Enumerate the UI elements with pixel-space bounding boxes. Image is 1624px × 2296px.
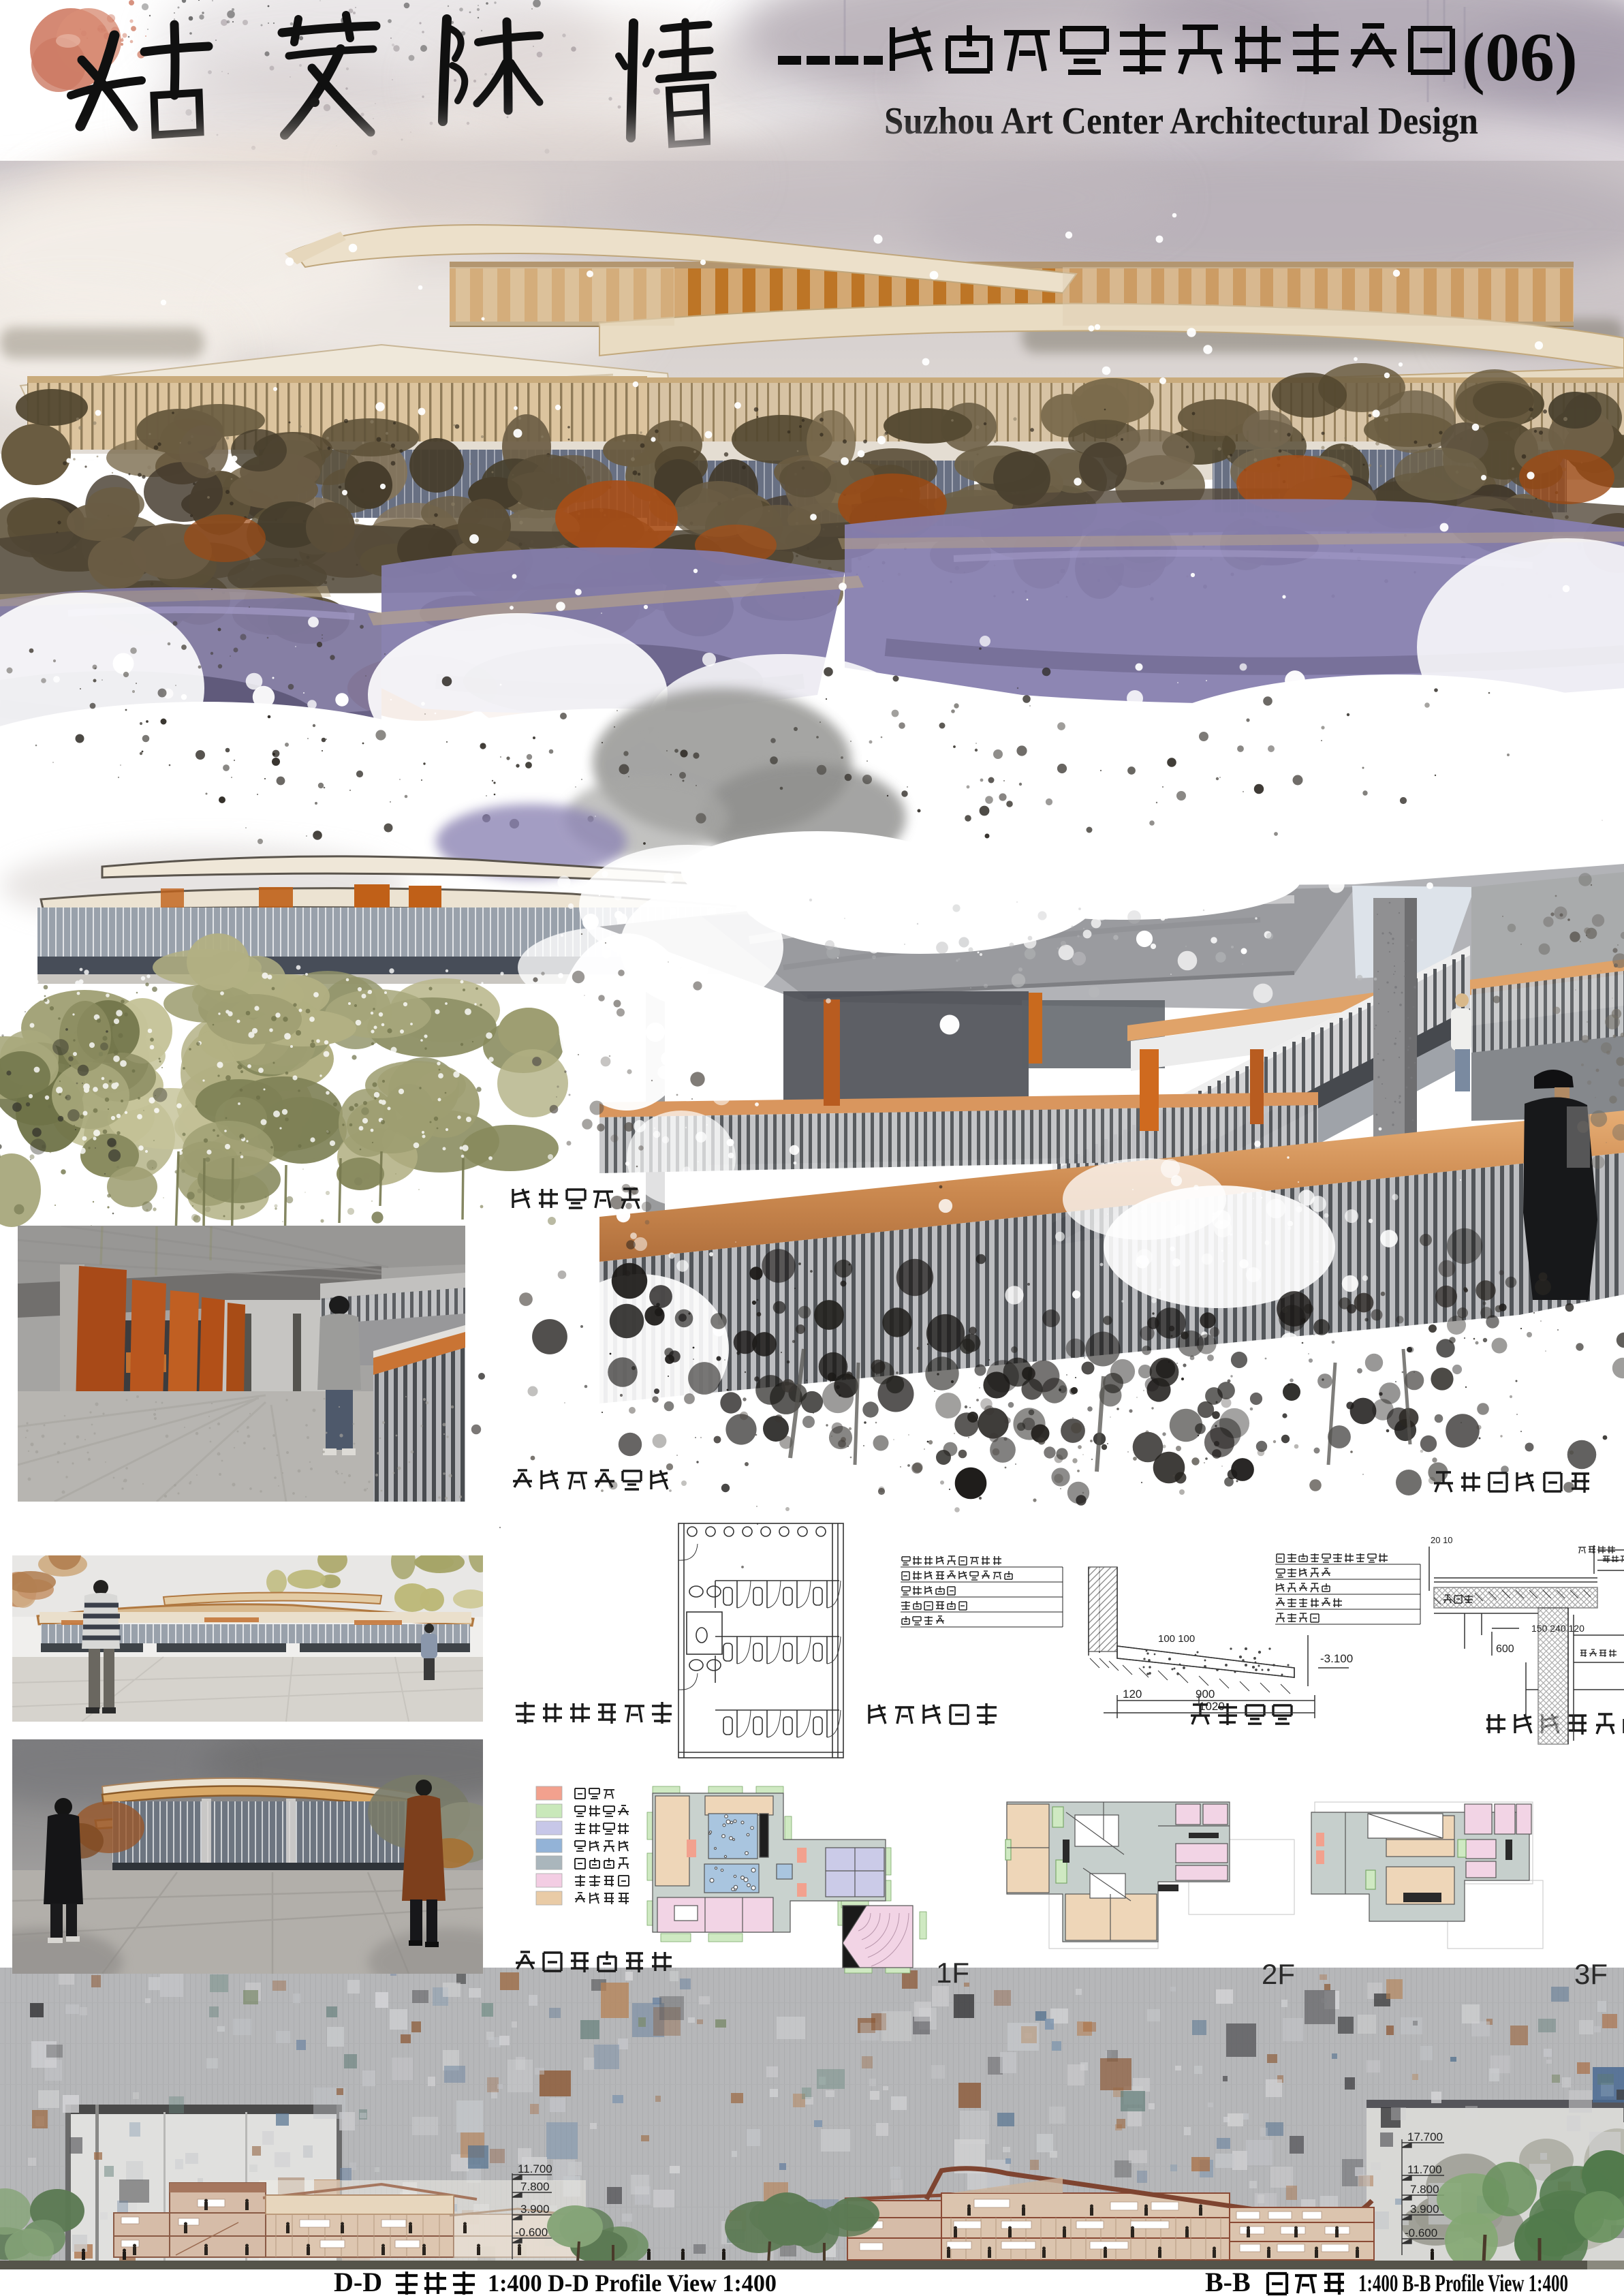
svg-text:7.800: 7.800	[520, 2180, 550, 2193]
svg-text:3F: 3F	[1574, 1958, 1608, 1990]
svg-text:1:400 B-B Profile View 1:4: 1:400 B-B Profile View 1:400	[1358, 2269, 1568, 2296]
svg-text:600: 600	[1496, 1643, 1514, 1655]
svg-text:B-B: B-B	[1205, 2267, 1251, 2296]
svg-text:17.700: 17.700	[1407, 2130, 1443, 2143]
svg-text:150 240 120: 150 240 120	[1531, 1623, 1584, 1634]
svg-text:11.700: 11.700	[1407, 2163, 1442, 2176]
svg-text:Suzhou Art Center Architectura: Suzhou Art Center Architectural Design	[884, 100, 1478, 142]
svg-text:(06): (06)	[1462, 19, 1578, 96]
svg-text:2F: 2F	[1262, 1958, 1295, 1990]
svg-text:3.900: 3.900	[520, 2203, 550, 2216]
svg-text:120: 120	[1123, 1688, 1142, 1701]
svg-text:11.700: 11.700	[518, 2162, 552, 2175]
svg-text:D-D: D-D	[334, 2267, 382, 2296]
svg-text:1020: 1020	[1199, 1700, 1225, 1713]
svg-text:3.900: 3.900	[1410, 2203, 1439, 2216]
svg-text:-3.100: -3.100	[1320, 1652, 1353, 1665]
svg-text:1:400 D-D Profile View 1:4: 1:400 D-D Profile View 1:400	[488, 2269, 777, 2296]
svg-text:7.800: 7.800	[1410, 2183, 1439, 2196]
svg-text:20 10: 20 10	[1431, 1535, 1453, 1545]
svg-text:-0.600: -0.600	[515, 2226, 548, 2239]
svg-text:1F: 1F	[936, 1957, 969, 1989]
svg-text:100 100: 100 100	[1158, 1633, 1195, 1645]
svg-text:-0.600: -0.600	[1405, 2227, 1437, 2239]
svg-text:900: 900	[1196, 1688, 1215, 1701]
